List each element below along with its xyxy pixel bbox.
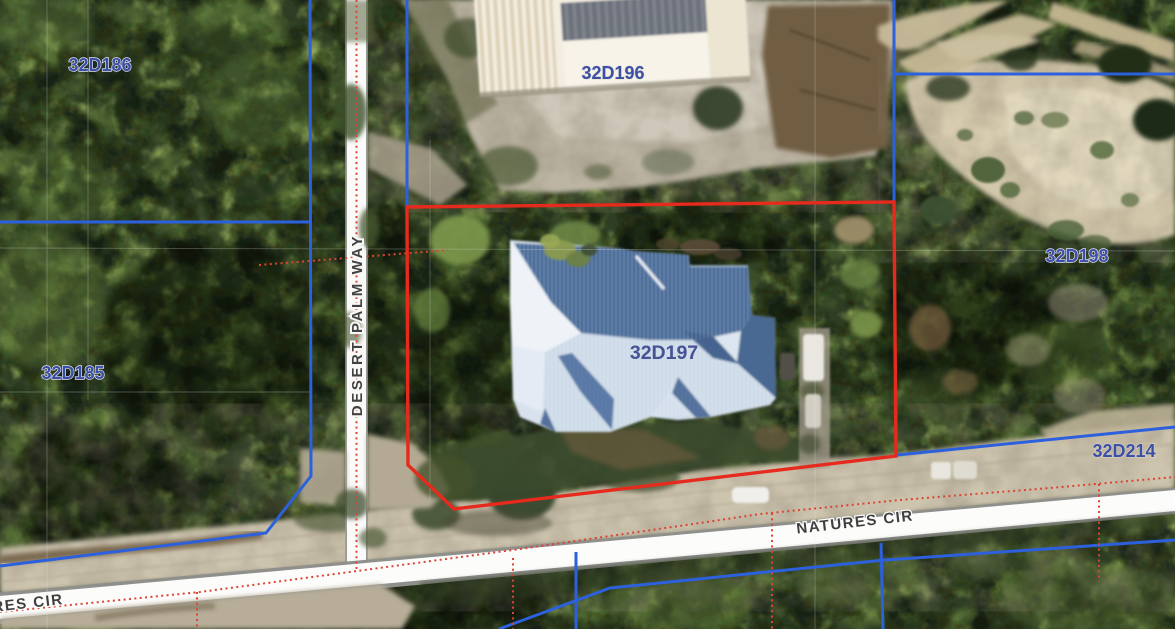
svg-text:32D186: 32D186: [68, 55, 131, 75]
svg-text:32D214: 32D214: [1092, 441, 1155, 461]
svg-text:32D196: 32D196: [581, 63, 644, 83]
svg-text:DESERT PALM WAY: DESERT PALM WAY: [349, 234, 366, 416]
svg-text:32D198: 32D198: [1045, 246, 1108, 266]
svg-text:32D185: 32D185: [41, 363, 104, 383]
svg-text:32D197: 32D197: [630, 342, 698, 364]
